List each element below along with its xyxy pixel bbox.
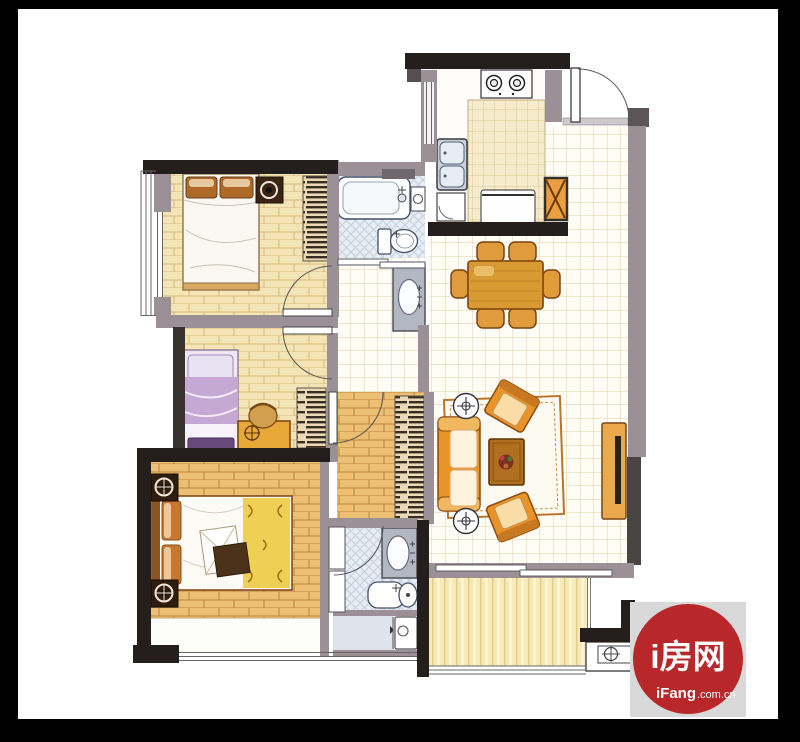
watermark-title: i房网	[650, 638, 725, 675]
coffee-table	[489, 439, 524, 485]
gas-stove-icon	[481, 70, 532, 98]
tv-icon	[615, 436, 621, 504]
watermark-brand: iFang	[656, 685, 696, 702]
nightstand-master-top-lamp-icon	[151, 474, 178, 501]
flue-shaft-icon	[545, 178, 567, 220]
tv-cabinet	[602, 423, 626, 519]
master-bed	[152, 496, 292, 590]
wardrobe2	[297, 388, 326, 448]
master-sliding-panel-1	[329, 527, 345, 569]
appliance-icon	[481, 190, 535, 224]
balcony-window-lines	[429, 666, 586, 674]
nightstand1-lamp-icon	[256, 177, 283, 203]
hallway-wardrobe	[395, 396, 424, 521]
bathtub-icon	[338, 177, 410, 219]
bath-shelf-icon	[411, 187, 425, 211]
nightstand-master-bottom-lamp-icon	[151, 580, 178, 607]
double-sink-icon	[437, 139, 467, 190]
side-table-top-icon	[454, 394, 479, 419]
bed2	[184, 350, 238, 452]
bed1	[183, 174, 259, 290]
floor-plan-svg: i房网 iFang .com.cn	[0, 0, 800, 742]
toilet2-icon	[368, 582, 417, 608]
side-table-bottom-icon	[454, 509, 479, 534]
watermark: i房网 iFang .com.cn	[630, 602, 746, 717]
dining-table	[468, 261, 543, 309]
kitchen-window	[424, 82, 434, 144]
toilet1-icon	[378, 229, 418, 254]
sofa	[438, 417, 480, 511]
floor-plan-image: i房网 iFang .com.cn	[0, 0, 800, 742]
bedroom1-window	[158, 212, 163, 297]
desk-chair	[249, 404, 277, 428]
bay-window-bedroom1	[141, 171, 156, 316]
balcony-floor	[429, 578, 588, 666]
watermark-suffix: .com.cn	[697, 689, 736, 701]
basin2-icon	[382, 528, 417, 578]
corridor-vanity	[393, 264, 425, 331]
ac-platform	[586, 642, 634, 671]
master-sliding-panel-2	[329, 571, 345, 612]
sliding-door-panel-right	[520, 570, 612, 576]
sliding-door-panel-left	[436, 565, 526, 571]
counter-unit-icon	[437, 193, 465, 221]
entry-door	[571, 68, 629, 122]
